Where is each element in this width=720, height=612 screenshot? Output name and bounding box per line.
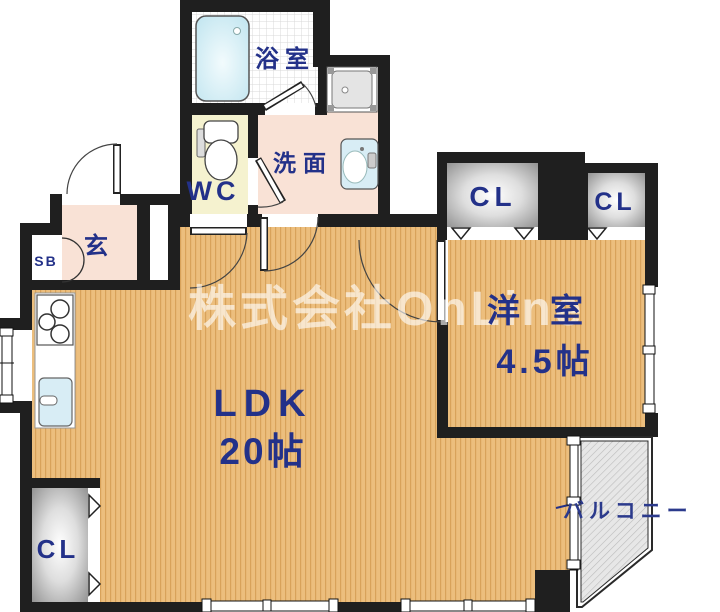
wall-segment [20, 280, 180, 290]
closet-upper-right-label: CL [594, 188, 635, 216]
wall-segment [645, 413, 658, 437]
washing-machine-pan-icon [327, 67, 377, 112]
entrance-door-opening [62, 194, 120, 205]
wall-segment [535, 570, 570, 612]
ldk-size-label: 20帖 [219, 431, 306, 472]
window-bay-west [2, 330, 12, 401]
wall-segment [20, 223, 32, 318]
entrance-door-arc [67, 144, 117, 194]
bathtub-drain [234, 28, 241, 35]
closet-upper-left-label: CL [469, 181, 516, 212]
shoe-box-label: SB [34, 253, 57, 269]
wall-segment [645, 240, 658, 287]
entrance-label: 玄 [84, 232, 108, 260]
wall-segment [168, 205, 180, 290]
wall-segment [378, 55, 390, 227]
western-room-size-label: 4.5帖 [496, 343, 593, 381]
wall-segment [318, 55, 327, 112]
bathroom-label: 浴室 [255, 45, 315, 73]
closet-bottom-label: CL [37, 534, 80, 564]
wall-segment [137, 194, 150, 290]
washbasin-icon [341, 139, 378, 189]
western-room-label: 洋室 [487, 292, 613, 329]
wall-segment [120, 194, 192, 205]
wc-inner-door-opening [248, 158, 258, 205]
wall-segment [318, 214, 438, 227]
wall-segment [247, 214, 262, 227]
washroom-label: 洗面 [273, 150, 333, 176]
wc-label: WC [187, 176, 240, 206]
floor-plan-drawing: 株式会社OnLine 浴室 洗面 WC 玄 SB LDK 20帖 洋室 4.5帖… [0, 0, 720, 612]
wall-segment [248, 112, 258, 158]
wall-segment [337, 602, 403, 612]
ldk-label: LDK [213, 383, 312, 425]
balcony-label: バルコニー [563, 500, 693, 523]
wall-segment [180, 214, 190, 227]
washroom-door-opening [262, 214, 318, 227]
bay-window-floor [12, 330, 32, 401]
kitchen-counter [35, 293, 75, 428]
wall-segment [437, 322, 448, 437]
wc-door-opening [190, 214, 247, 227]
bathtub-icon [196, 16, 249, 101]
wall-segment [180, 0, 330, 12]
floor-plan: 株式会社OnLine 浴室 洗面 WC 玄 SB LDK 20帖 洋室 4.5帖… [0, 0, 720, 612]
